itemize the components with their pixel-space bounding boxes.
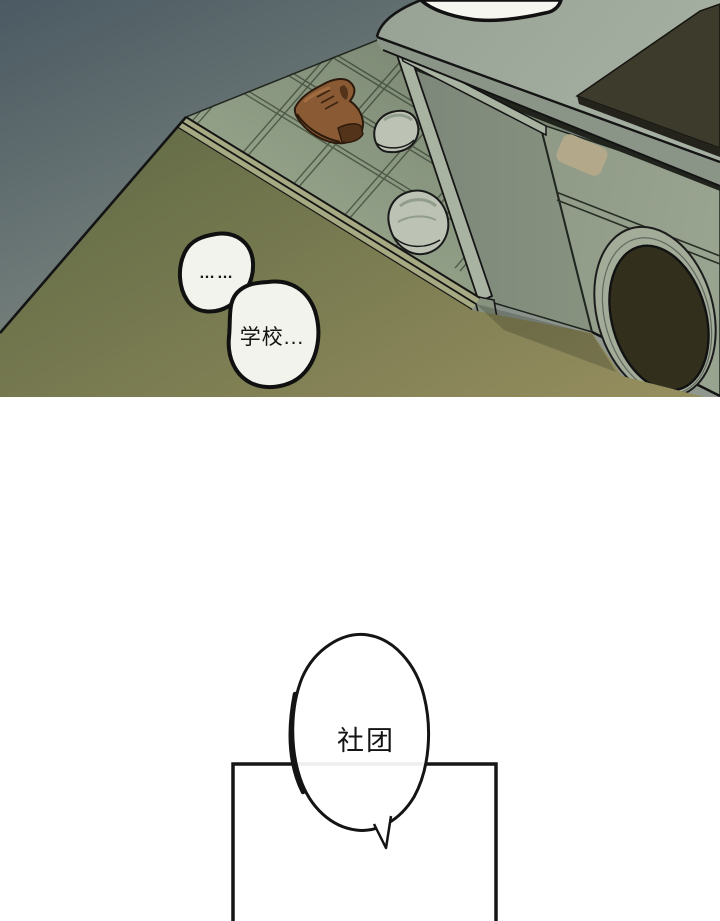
bubble-dots-text: ……	[199, 265, 235, 282]
bubble-school-text: 学校...	[240, 326, 305, 349]
comic-page: …… 学校... 社团	[0, 0, 720, 921]
speech-bubble-school: 学校...	[229, 282, 319, 387]
sneaker-left	[374, 111, 418, 152]
panel-entryway-scene: …… 学校...	[0, 0, 720, 412]
comic-artwork: …… 学校... 社团	[0, 0, 720, 921]
bubble-club-text: 社团	[337, 726, 395, 756]
